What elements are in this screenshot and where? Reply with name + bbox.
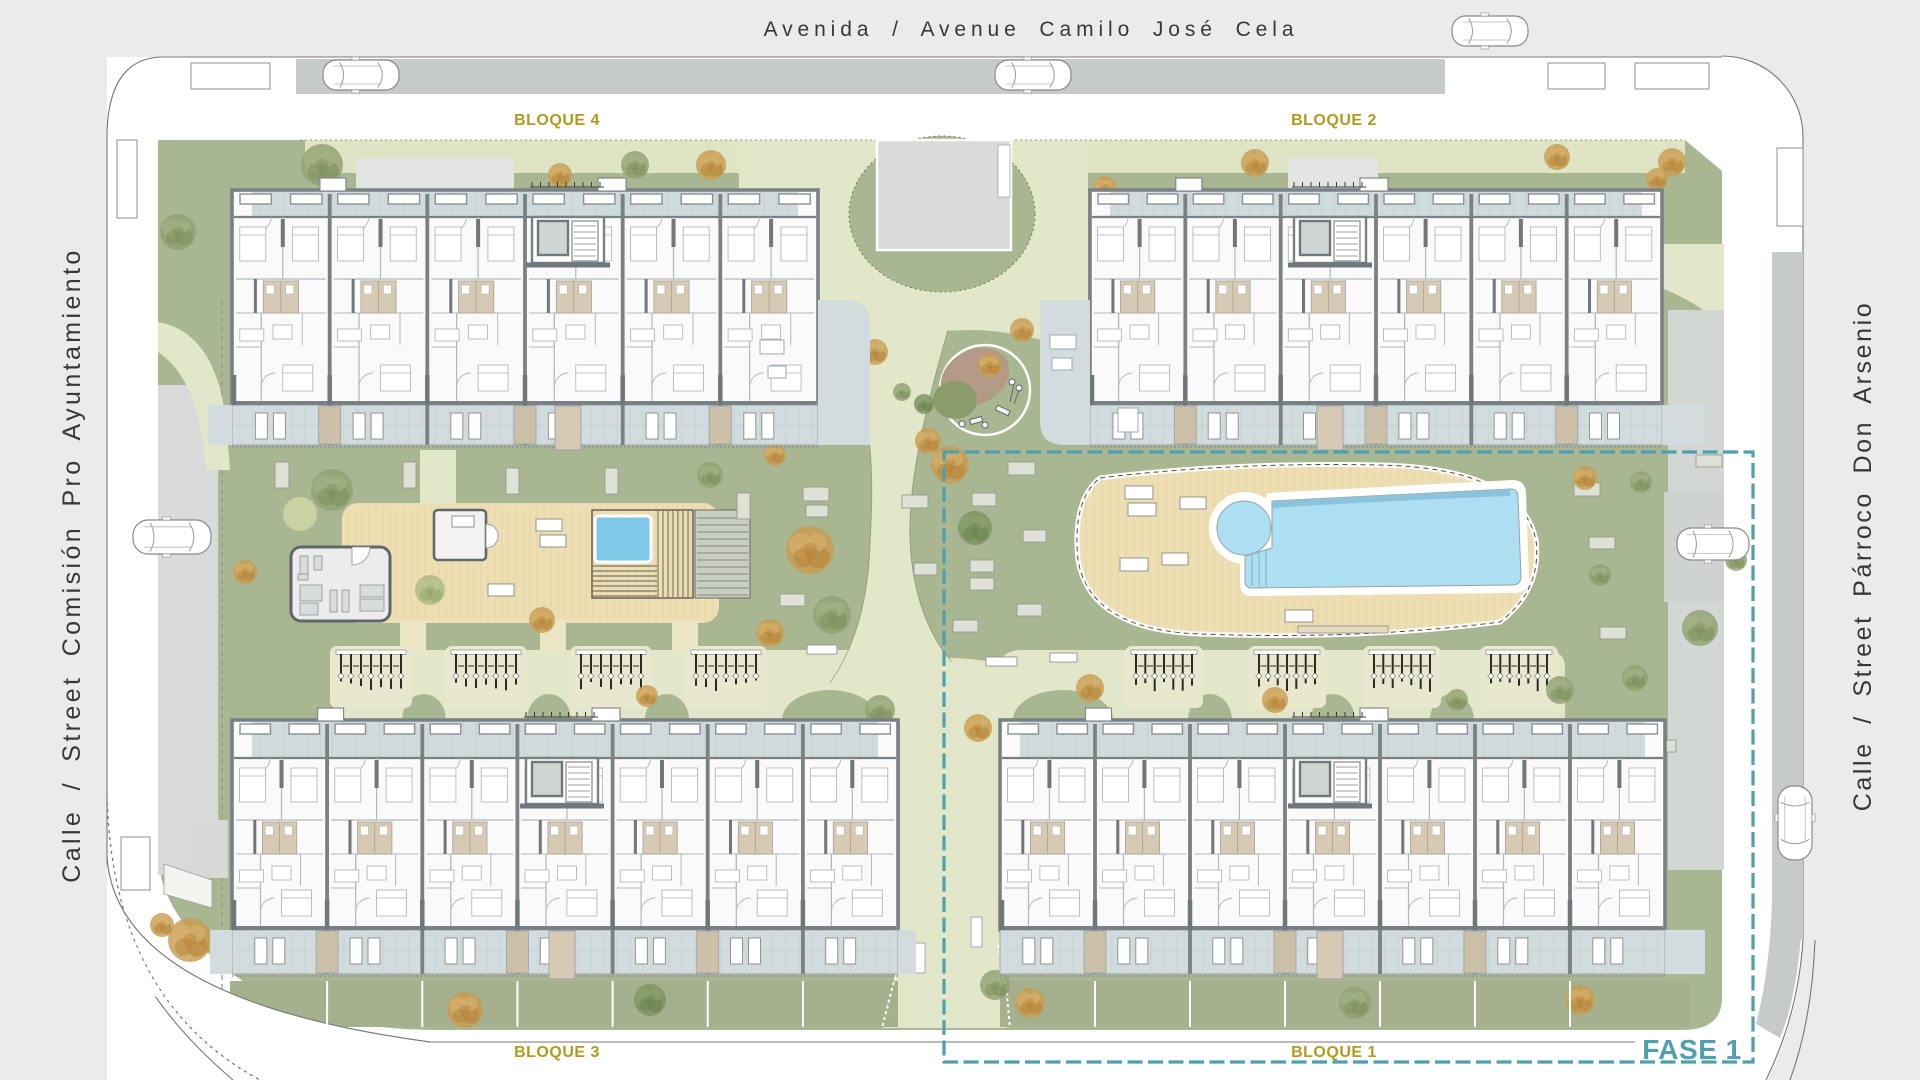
- svg-text:BLOQUE 2: BLOQUE 2: [1291, 112, 1377, 129]
- svg-text:BLOQUE 1: BLOQUE 1: [1291, 1044, 1377, 1061]
- svg-text:Avenida / Avenue Camilo José C: Avenida / Avenue Camilo José Cela: [764, 18, 1299, 41]
- svg-text:BLOQUE 3: BLOQUE 3: [514, 1044, 600, 1061]
- svg-text:FASE 1: FASE 1: [1642, 1034, 1741, 1065]
- svg-text:Calle / Street Comisión Pro Ay: Calle / Street Comisión Pro Ayuntamiento: [58, 247, 86, 883]
- svg-text:BLOQUE 4: BLOQUE 4: [514, 112, 600, 129]
- svg-text:Calle / Street Párroco Don Ars: Calle / Street Párroco Don Arsenio: [1849, 301, 1877, 812]
